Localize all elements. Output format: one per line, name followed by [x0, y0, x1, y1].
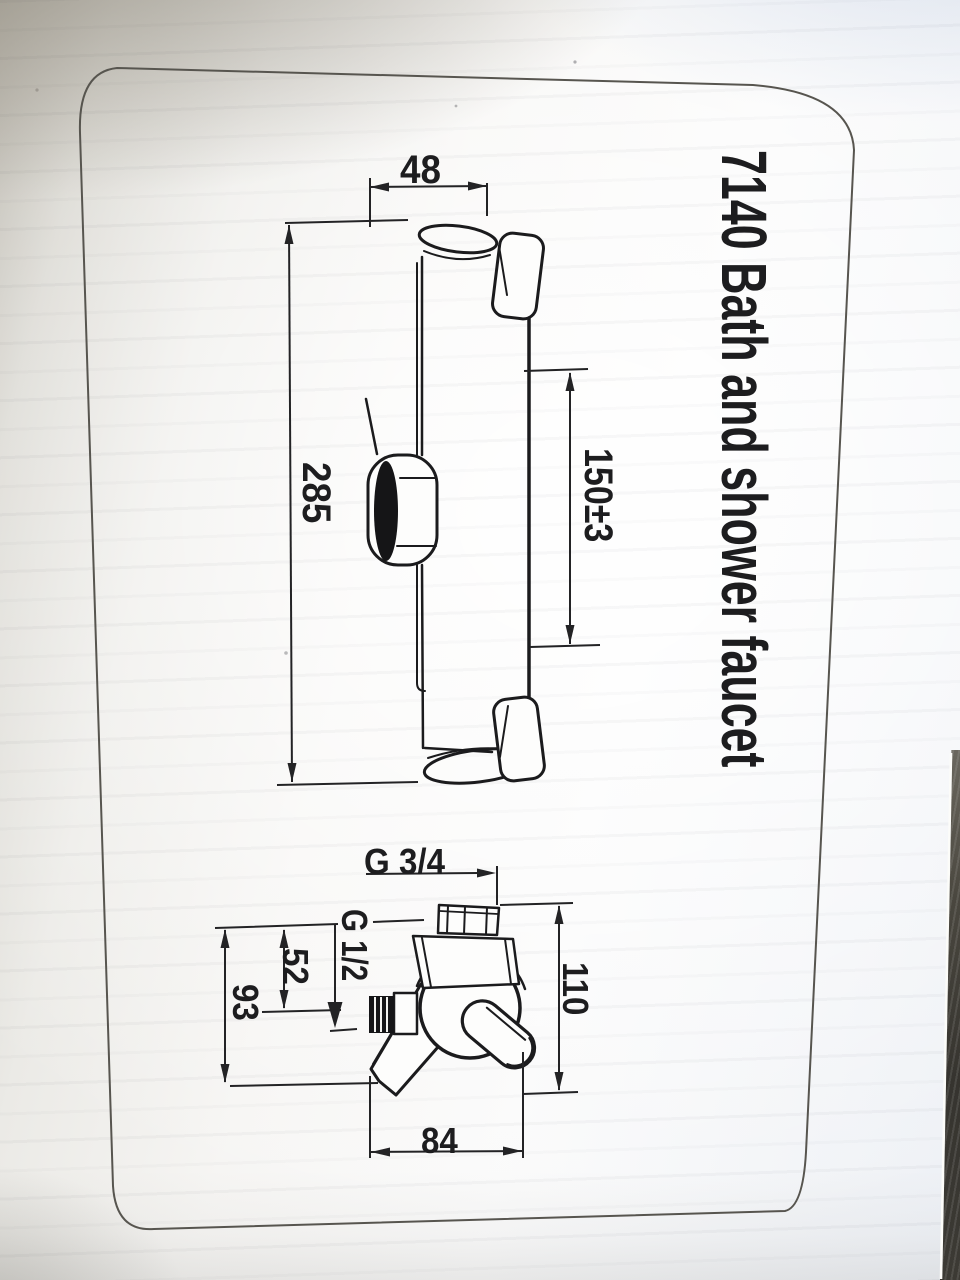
dim-label-285: 285 [296, 462, 336, 523]
thread-label-g34: G 3/4 [364, 844, 445, 880]
glider [366, 399, 437, 565]
outlet-nipple [369, 993, 417, 1034]
dim-label-48: 48 [400, 150, 441, 190]
glider-grip [374, 461, 398, 561]
wall-bracket-top [418, 221, 545, 320]
thread-label-g12: G 1/2 [336, 909, 372, 981]
product-title: 7140 Bath and shower faucet [712, 150, 776, 767]
dim-label-150: 150±3 [578, 448, 618, 542]
technical-drawing [0, 0, 960, 1280]
box-edge-highlight [941, 753, 951, 1279]
slide-bar-drawing [366, 221, 546, 788]
valve-collar [413, 936, 519, 988]
wall-bracket-bottom [422, 696, 545, 789]
dim-label-110: 110 [557, 962, 593, 1015]
dim-label-84: 84 [421, 1123, 458, 1159]
box-photo: 7140 Bath and shower faucet 48 285 150±3… [0, 0, 960, 1280]
dust-specks [35, 60, 576, 654]
valve-drawing [369, 905, 543, 1095]
connection-nut [438, 905, 499, 935]
dim-label-52: 52 [277, 948, 313, 985]
dim-label-93: 93 [227, 984, 263, 1021]
